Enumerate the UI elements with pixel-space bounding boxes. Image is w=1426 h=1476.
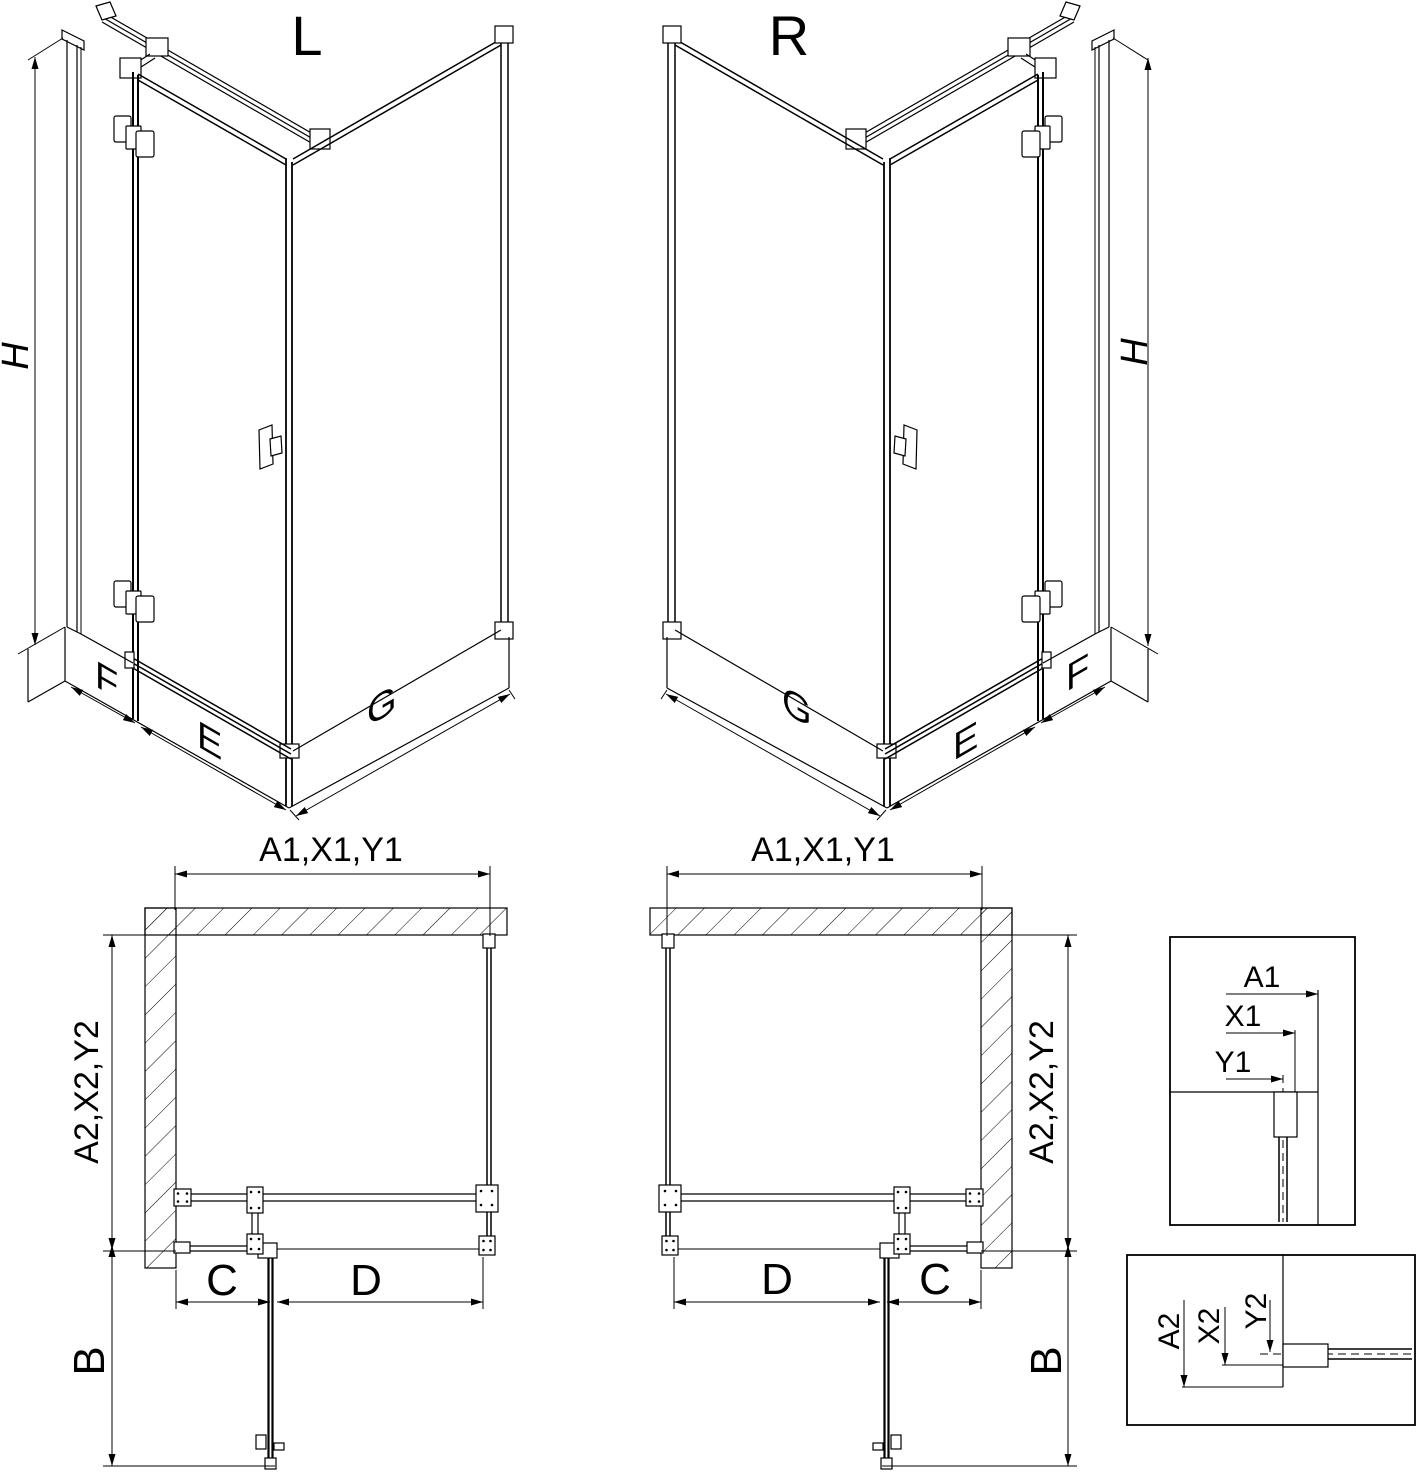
dim-label-width-left-plan: A1,X1,Y1 [259,831,403,869]
dim-label-depth-left-plan: A2,X2,Y2 [68,1020,106,1164]
dim-label-e-right: E [953,712,978,769]
wall-hatch-top-right-plan [650,908,1012,935]
wall-hatch-side-right-plan [981,908,1012,1268]
dim-label-f-right: F [1066,644,1089,700]
iso-view-right: R H F E G [661,2,1158,820]
detail-label-y1: Y1 [1215,1046,1252,1079]
wall-hatch-top-left-plan [145,908,507,935]
dim-label-b-left-plan: B [65,1346,114,1375]
dim-label-g-right: G [782,677,812,737]
detail-view-width: A1 X1 Y1 [1170,937,1355,1225]
dim-label-e-left: E [197,712,222,769]
dim-label-h-right: H [1114,338,1156,366]
variant-label-left: L [291,4,322,67]
dim-label-c-right-plan: C [919,1255,951,1304]
plan-view-left: A1,X1,Y1 A2,X2,Y2 C D B [65,831,507,1469]
iso-view-left: L H F E G [0,2,515,820]
detail-label-a1: A1 [1244,961,1281,994]
variant-label-right: R [769,4,809,67]
technical-drawing: L H F E G R H F E G A1,X1,Y1 A2,X2,Y2 C … [0,0,1426,1476]
dim-label-b-right-plan: B [1022,1346,1071,1375]
dim-label-d-left-plan: D [350,1256,382,1305]
detail-label-a2: A2 [1153,1313,1186,1350]
detail-label-x2: X2 [1193,1308,1226,1345]
dim-label-width-right-plan: A1,X1,Y1 [751,831,895,869]
dim-label-d-right-plan: D [761,1255,793,1304]
plan-view-right: A1,X1,Y1 A2,X2,Y2 C D B [650,831,1077,1469]
detail-label-x1: X1 [1225,1000,1262,1033]
dim-label-depth-right-plan: A2,X2,Y2 [1023,1020,1061,1164]
wall-hatch-side-left-plan [145,908,176,1268]
detail-view-depth: A2 X2 Y2 [1127,1255,1415,1425]
detail-label-y2: Y2 [1240,1293,1273,1330]
dim-label-g-left: G [367,676,397,736]
dim-label-c-left-plan: C [206,1256,238,1305]
dim-label-h-left: H [0,342,37,370]
